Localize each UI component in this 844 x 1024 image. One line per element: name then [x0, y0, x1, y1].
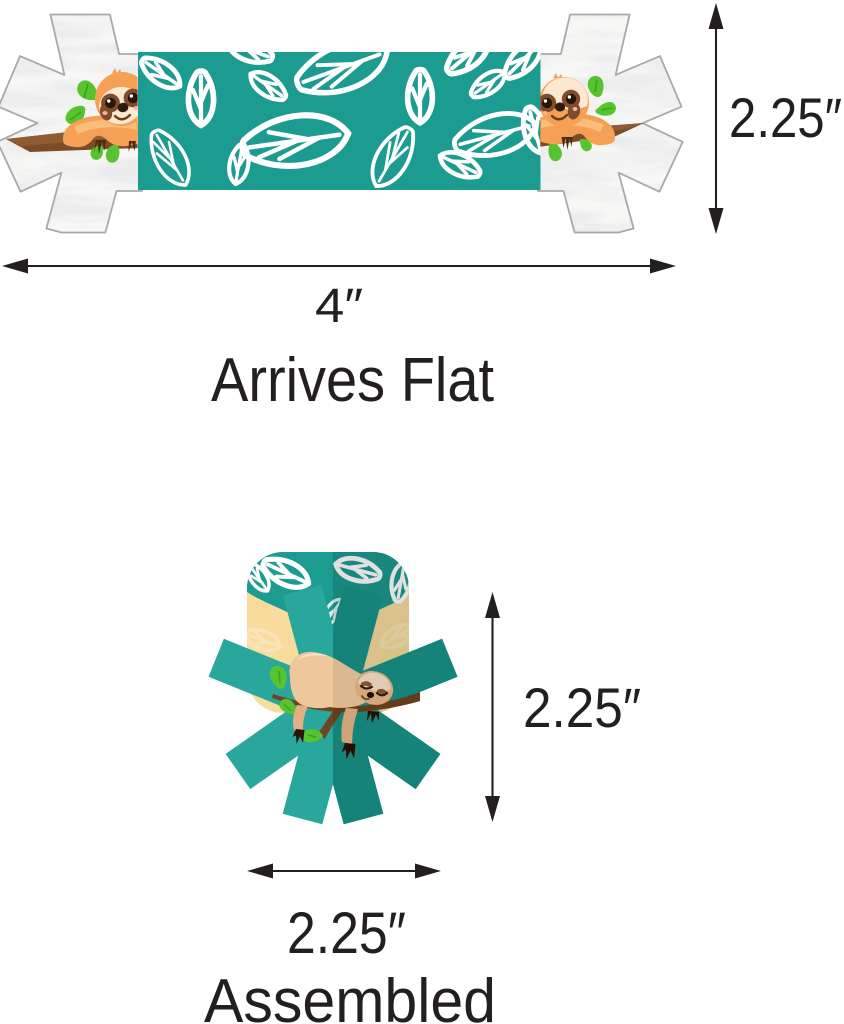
svg-text:2.25″: 2.25″ — [523, 676, 641, 739]
svg-text:Assembled: Assembled — [204, 967, 496, 1024]
svg-text:2.25″: 2.25″ — [287, 901, 406, 966]
svg-text:4″: 4″ — [315, 280, 363, 333]
svg-text:2.25″: 2.25″ — [729, 86, 842, 149]
svg-text:Arrives Flat: Arrives Flat — [211, 346, 494, 415]
